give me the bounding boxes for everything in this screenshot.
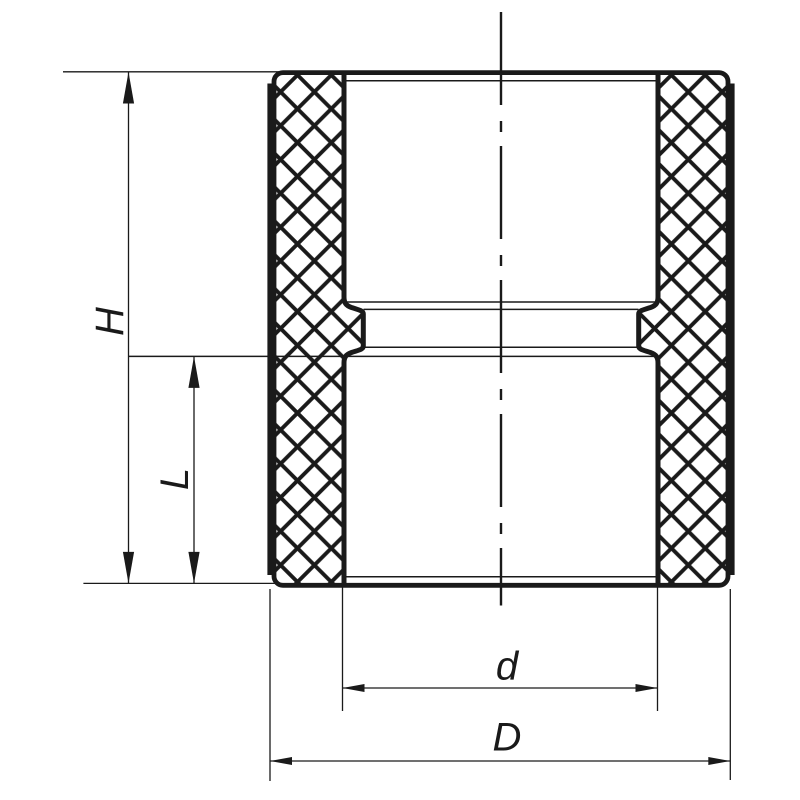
svg-text:L: L — [153, 468, 197, 490]
svg-text:d: d — [496, 644, 520, 688]
svg-text:D: D — [493, 715, 522, 759]
svg-text:H: H — [88, 307, 132, 336]
